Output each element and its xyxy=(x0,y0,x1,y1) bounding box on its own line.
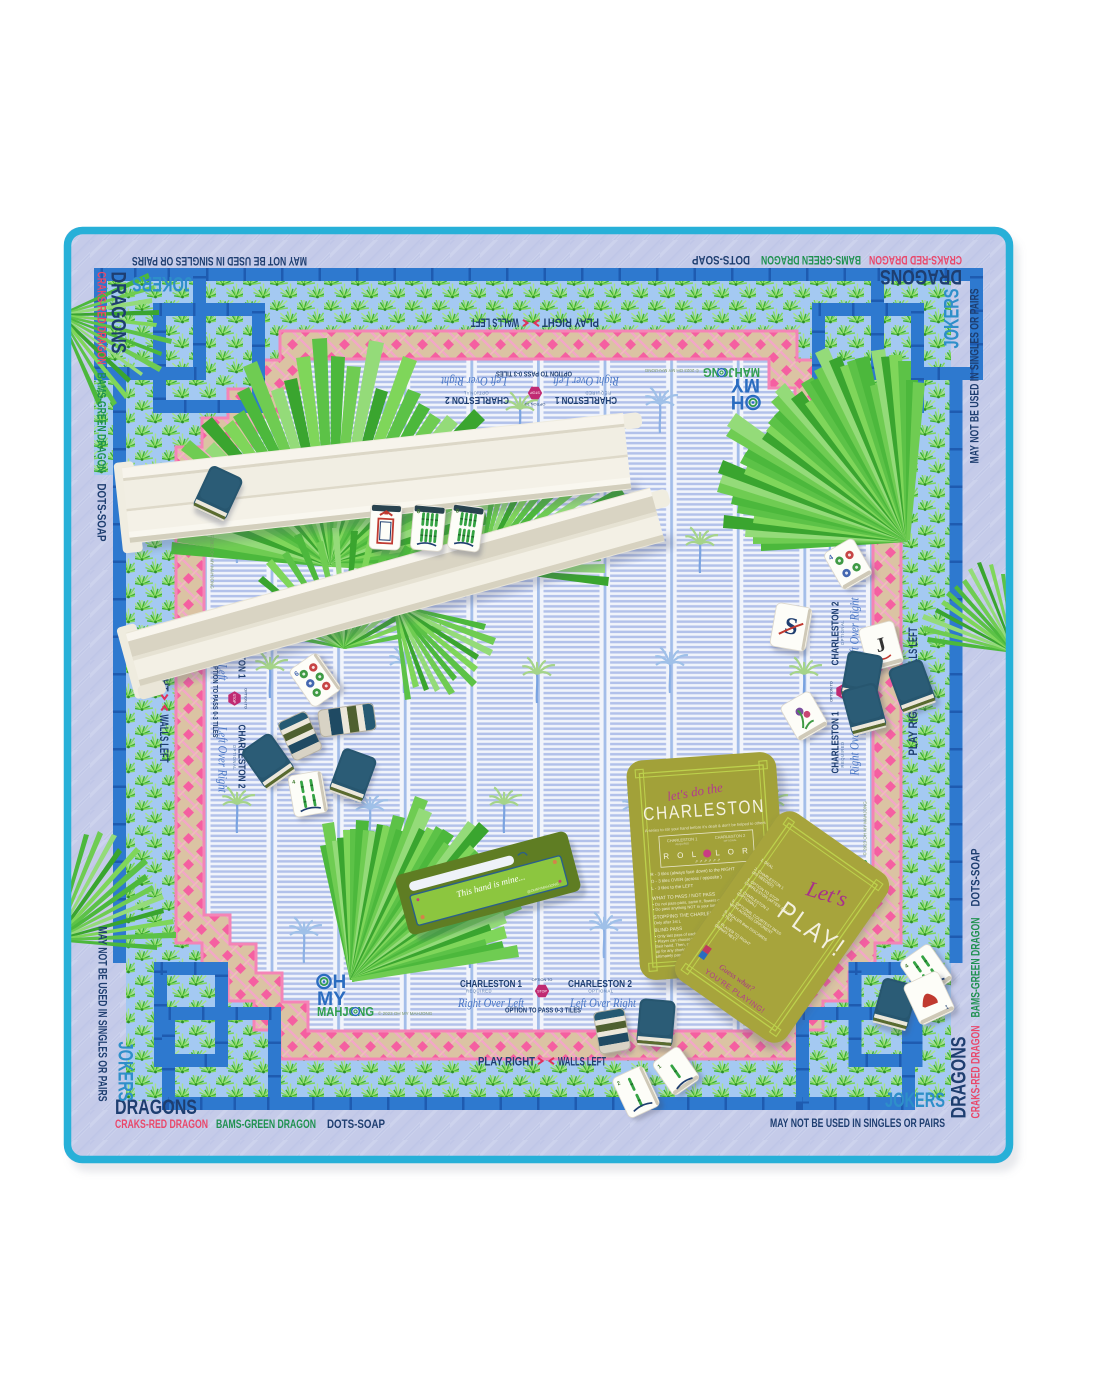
svg-text:8: 8 xyxy=(417,509,421,515)
svg-text:OPTIONAL: OPTIONAL xyxy=(588,989,613,994)
svg-text:BAMS-GREEN DRAGON: BAMS-GREEN DRAGON xyxy=(216,1119,316,1131)
svg-text:OPTION TO: OPTION TO xyxy=(532,978,553,982)
svg-text:WALLS LEFT: WALLS LEFT xyxy=(558,1057,606,1069)
svg-text:OPTION TO PASS 0-3 TILES: OPTION TO PASS 0-3 TILES xyxy=(505,1006,581,1015)
svg-text:MAY NOT BE USED IN SINGLES OR: MAY NOT BE USED IN SINGLES OR PAIRS xyxy=(770,1118,945,1130)
svg-text:© 2023 OH MY MAHJONG: © 2023 OH MY MAHJONG xyxy=(378,1010,433,1016)
svg-text:CRAKS-RED DRAGON: CRAKS-RED DRAGON xyxy=(115,1119,208,1131)
svg-text:STOP: STOP xyxy=(537,990,547,994)
svg-text:JOKERS: JOKERS xyxy=(885,1089,945,1112)
svg-text:PLAY RIGHT: PLAY RIGHT xyxy=(478,1057,535,1069)
svg-text:DOTS-SOAP: DOTS-SOAP xyxy=(327,1119,385,1131)
svg-text:MAHJONG: MAHJONG xyxy=(317,1005,374,1019)
svg-text:REQUIRED: REQUIRED xyxy=(466,989,492,994)
